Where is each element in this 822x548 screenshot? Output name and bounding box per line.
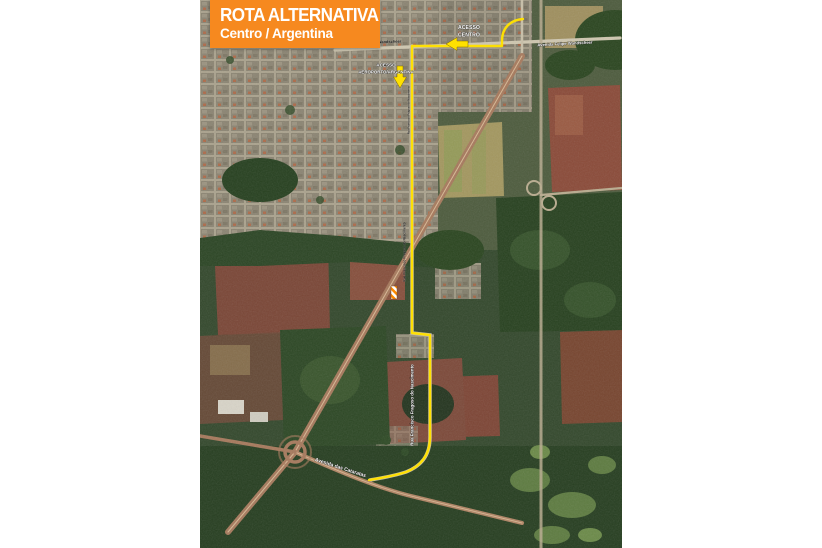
label-acesso-aeroporto-line1: ACESSO [376,63,396,68]
route-banner: ROTA ALTERNATIVA Centro / Argentina [210,0,380,48]
label-rua-route-south: Rua Francisco Fragoso do Nascimento [410,364,415,446]
satellite-map: ACESSO CENTRO ACESSO AEROPORTO/ARGENTINA… [200,0,622,548]
banner-subtitle: Centro / Argentina [220,25,366,41]
label-rua-route-mid: Rua Francisco Fragoso do Nascimento [403,222,407,281]
label-acesso-centro-line2: CENTRO [458,33,480,39]
label-acesso-aeroporto-line2: AEROPORTO/ARGENTINA [358,70,414,75]
satellite-map-image: ACESSO CENTRO ACESSO AEROPORTO/ARGENTINA… [200,0,622,548]
label-acesso-centro-line1: ACESSO [458,25,480,31]
banner-title: ROTA ALTERNATIVA [220,5,363,25]
label-rua-route-north: Rua Francisco Fragoso do Nascimento [407,86,411,135]
hazard-stripes-icon [391,286,397,299]
page: ACESSO CENTRO ACESSO AEROPORTO/ARGENTINA… [0,0,822,548]
